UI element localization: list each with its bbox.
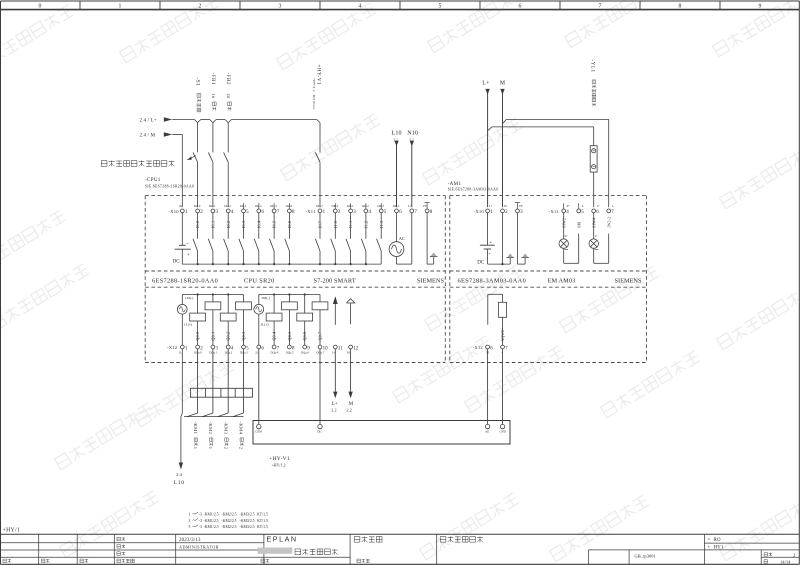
svg-text:2L: 2L <box>255 350 258 354</box>
svg-text:-KM3/2.5: -KM3/2.5 <box>240 512 255 516</box>
svg-text:DI1: DI1 <box>317 430 322 434</box>
svg-text:-KM2/2.5: -KM2/2.5 <box>222 512 237 516</box>
svg-text:6ES7288-3AM03-0AA0: 6ES7288-3AM03-0AA0 <box>458 277 527 284</box>
svg-text:PIW2: PIW2 <box>562 218 566 228</box>
svg-text:DC: DC <box>477 259 485 265</box>
svg-text:-KM3/2.5: -KM3/2.5 <box>240 519 255 523</box>
svg-text:2.2: 2.2 <box>331 408 336 413</box>
svg-text:GND: GND <box>500 430 506 434</box>
svg-text:-KM1/2.5: -KM1/2.5 <box>204 512 219 516</box>
svg-text:11: 11 <box>338 346 343 351</box>
svg-text:DQa.7: DQa.7 <box>316 350 324 354</box>
svg-text:DQa.2: DQa.2 <box>225 350 233 354</box>
svg-text:DQa.6: DQa.6 <box>301 350 309 354</box>
svg-text:1: 1 <box>208 447 213 449</box>
svg-text:L10: L10 <box>174 480 185 486</box>
svg-text:KT/1.5: KT/1.5 <box>257 525 268 529</box>
svg-text:COM: COM <box>255 430 262 434</box>
svg-text:+: + <box>187 252 190 258</box>
svg-text:2: 2 <box>223 447 228 449</box>
svg-text:+HY/1.2: +HY/1.2 <box>272 463 286 467</box>
svg-text:3: 3 <box>279 3 282 9</box>
svg-text:DQa.0: DQa.0 <box>194 350 202 354</box>
svg-text:5: 5 <box>189 525 191 529</box>
svg-text:6ES7288-1SR20-0AA0: 6ES7288-1SR20-0AA0 <box>152 277 218 284</box>
svg-text:-X10: -X10 <box>169 209 180 214</box>
svg-text:PE: PE <box>423 204 427 208</box>
svg-text:KT/1.5: KT/1.5 <box>257 512 268 516</box>
svg-text:SIEMENS: SIEMENS <box>417 277 444 284</box>
svg-text:Q0.5: Q0.5 <box>287 332 292 341</box>
svg-text:2.4 / L+: 2.4 / L+ <box>140 119 157 124</box>
svg-text:-KM3: -KM3 <box>223 422 228 435</box>
svg-text:-X11: -X11 <box>306 209 317 214</box>
svg-text:1+: 1+ <box>595 234 598 238</box>
svg-text:DQa.4: DQa.4 <box>271 350 279 354</box>
svg-text:DIa.1: DIa.1 <box>209 204 216 208</box>
svg-text:-: - <box>489 251 491 257</box>
svg-text:-KM1: -KM1 <box>193 422 198 435</box>
svg-text:ADMINISTRATOR: ADMINISTRATOR <box>179 544 219 549</box>
svg-text:DIb.5: DIb.5 <box>393 204 400 208</box>
svg-text:0M: 0M <box>577 222 581 228</box>
svg-text:1M(-): 1M(-) <box>185 296 194 300</box>
svg-text:-X12: -X12 <box>167 345 178 350</box>
svg-text:SIE.6ES7288-1SR20-0AA0: SIE.6ES7288-1SR20-0AA0 <box>145 185 194 189</box>
svg-text:L10: L10 <box>391 131 401 137</box>
svg-text:-S1: -S1 <box>195 78 201 87</box>
svg-text:-3: -3 <box>199 512 202 516</box>
svg-text:1: 1 <box>189 512 191 516</box>
svg-text:1: 1 <box>193 447 198 449</box>
svg-text:1+: 1+ <box>597 204 600 208</box>
svg-text:DIa.7: DIa.7 <box>316 204 323 208</box>
svg-text:1: 1 <box>119 3 122 9</box>
svg-text:-X10: -X10 <box>474 209 485 214</box>
svg-text:-3: -3 <box>199 519 202 523</box>
svg-text:L+: L+ <box>482 81 489 87</box>
svg-text:-CPU1: -CPU1 <box>145 177 161 183</box>
svg-text:+: + <box>708 546 711 551</box>
svg-text:L+: L+ <box>332 402 338 407</box>
svg-text:+HY-V1: +HY-V1 <box>269 456 290 462</box>
svg-text:AQW2: AQW2 <box>501 330 505 342</box>
svg-text:M: M <box>349 402 354 407</box>
svg-text:1L: 1L <box>179 350 182 354</box>
svg-text:PE: PE <box>519 204 523 208</box>
svg-text:2: 2 <box>199 3 202 9</box>
svg-text:DIa.0: DIa.0 <box>194 204 201 208</box>
svg-text:-KM2/2.5: -KM2/2.5 <box>222 525 237 529</box>
svg-text:KT/1.5: KT/1.5 <box>257 519 268 523</box>
svg-text:EM AM03: EM AM03 <box>548 277 576 284</box>
svg-text:CPU SR20: CPU SR20 <box>244 277 275 284</box>
svg-text:EPLAN: EPLAN <box>267 535 298 544</box>
svg-text:DC: DC <box>173 258 181 264</box>
svg-text:2.2: 2.2 <box>347 408 352 413</box>
svg-text:SIE.6ES7288-3AM03-0AA0: SIE.6ES7288-3AM03-0AA0 <box>448 188 499 192</box>
svg-text:1#: 1# <box>211 94 216 99</box>
svg-text:M: M <box>347 350 350 354</box>
svg-text:-KM2: -KM2 <box>208 422 213 435</box>
svg-text:2: 2 <box>239 447 244 449</box>
svg-text:2023/3/13: 2023/3/13 <box>179 538 201 543</box>
svg-text:=: = <box>708 538 711 543</box>
svg-text:12: 12 <box>353 346 359 351</box>
svg-text:0+: 0+ <box>567 204 570 208</box>
svg-text:-KM4: -KM4 <box>239 422 244 435</box>
svg-text:6: 6 <box>519 3 522 9</box>
svg-text:AI1: AI1 <box>485 430 490 434</box>
svg-text:14/14: 14/14 <box>780 559 791 564</box>
svg-text:-KM3/2.5: -KM3/2.5 <box>240 525 255 529</box>
svg-text:2L(+): 2L(+) <box>260 323 269 327</box>
svg-text:-X12: -X12 <box>473 345 484 350</box>
svg-text:2.4: 2.4 <box>176 472 182 477</box>
svg-text:L1: L1 <box>408 204 412 208</box>
svg-text:2#: 2# <box>226 94 231 99</box>
svg-text:-FB1: -FB1 <box>210 73 216 85</box>
svg-text:N10: N10 <box>407 131 418 137</box>
svg-text:1M: 1M <box>179 204 183 208</box>
svg-text:S7-200 SMART: S7-200 SMART <box>314 277 356 284</box>
svg-text:+HY/1: +HY/1 <box>3 527 21 533</box>
svg-text:Q0.1: Q0.1 <box>210 332 215 341</box>
svg-text:PIW4: PIW4 <box>592 218 596 228</box>
svg-text:DQa.1: DQa.1 <box>209 350 217 354</box>
svg-text:0+: 0+ <box>565 234 568 238</box>
svg-text:DQa.5: DQa.5 <box>286 350 294 354</box>
svg-text:Q0.4: Q0.4 <box>272 332 277 341</box>
svg-text:+HY/1.2: +HY/1.2 <box>312 78 316 92</box>
svg-text:Q0.0: Q0.0 <box>195 332 200 341</box>
svg-text:5.2: 5.2 <box>393 137 398 141</box>
svg-text:-X11: -X11 <box>549 209 560 214</box>
svg-text:4: 4 <box>359 3 362 9</box>
svg-text:3: 3 <box>189 519 191 523</box>
svg-text:DIa.2: DIa.2 <box>224 204 231 208</box>
svg-text:Q0.2: Q0.2 <box>226 332 231 341</box>
svg-text:M: M <box>504 204 507 208</box>
svg-text:Q0.6: Q0.6 <box>302 332 307 341</box>
svg-text:Q0.3: Q0.3 <box>241 332 246 341</box>
svg-text:AC: AC <box>399 236 405 241</box>
svg-text:8: 8 <box>679 3 682 9</box>
svg-text:5.2: 5.2 <box>409 137 414 141</box>
svg-text:L+: L+ <box>489 204 493 208</box>
svg-text:RO: RO <box>714 538 721 543</box>
svg-text:-KM2/2.5: -KM2/2.5 <box>222 519 237 523</box>
svg-text:RO Error: RO Error <box>312 95 316 110</box>
svg-text:2M(-): 2M(-) <box>261 296 270 300</box>
svg-text:1L(+): 1L(+) <box>184 323 193 327</box>
svg-text:2.4 / M: 2.4 / M <box>140 134 156 139</box>
svg-text:-: - <box>187 241 189 247</box>
svg-text:7: 7 <box>599 3 602 9</box>
svg-text:IW2-2: IW2-2 <box>607 217 611 228</box>
svg-text:-FB2: -FB2 <box>225 73 231 85</box>
svg-text:0-: 0- <box>582 204 584 208</box>
svg-text:-KM1/2.5: -KM1/2.5 <box>204 525 219 529</box>
svg-text:-AM1: -AM1 <box>448 181 462 187</box>
svg-text:5: 5 <box>439 3 442 9</box>
svg-text:-KM1/2.5: -KM1/2.5 <box>204 519 219 523</box>
svg-text:HY1: HY1 <box>714 546 724 551</box>
svg-text:0: 0 <box>39 3 42 9</box>
svg-text:1-: 1- <box>612 204 614 208</box>
svg-text:SIEMENS: SIEMENS <box>615 277 642 284</box>
svg-text:M: M <box>500 81 505 87</box>
svg-text:GB_tp3001: GB_tp3001 <box>635 554 656 559</box>
svg-text:Q0.7: Q0.7 <box>318 332 323 341</box>
svg-text:-YL1: -YL1 <box>590 60 596 73</box>
svg-text:9: 9 <box>759 3 762 9</box>
svg-text:-3: -3 <box>199 525 202 529</box>
svg-text:DQa.3: DQa.3 <box>240 350 248 354</box>
